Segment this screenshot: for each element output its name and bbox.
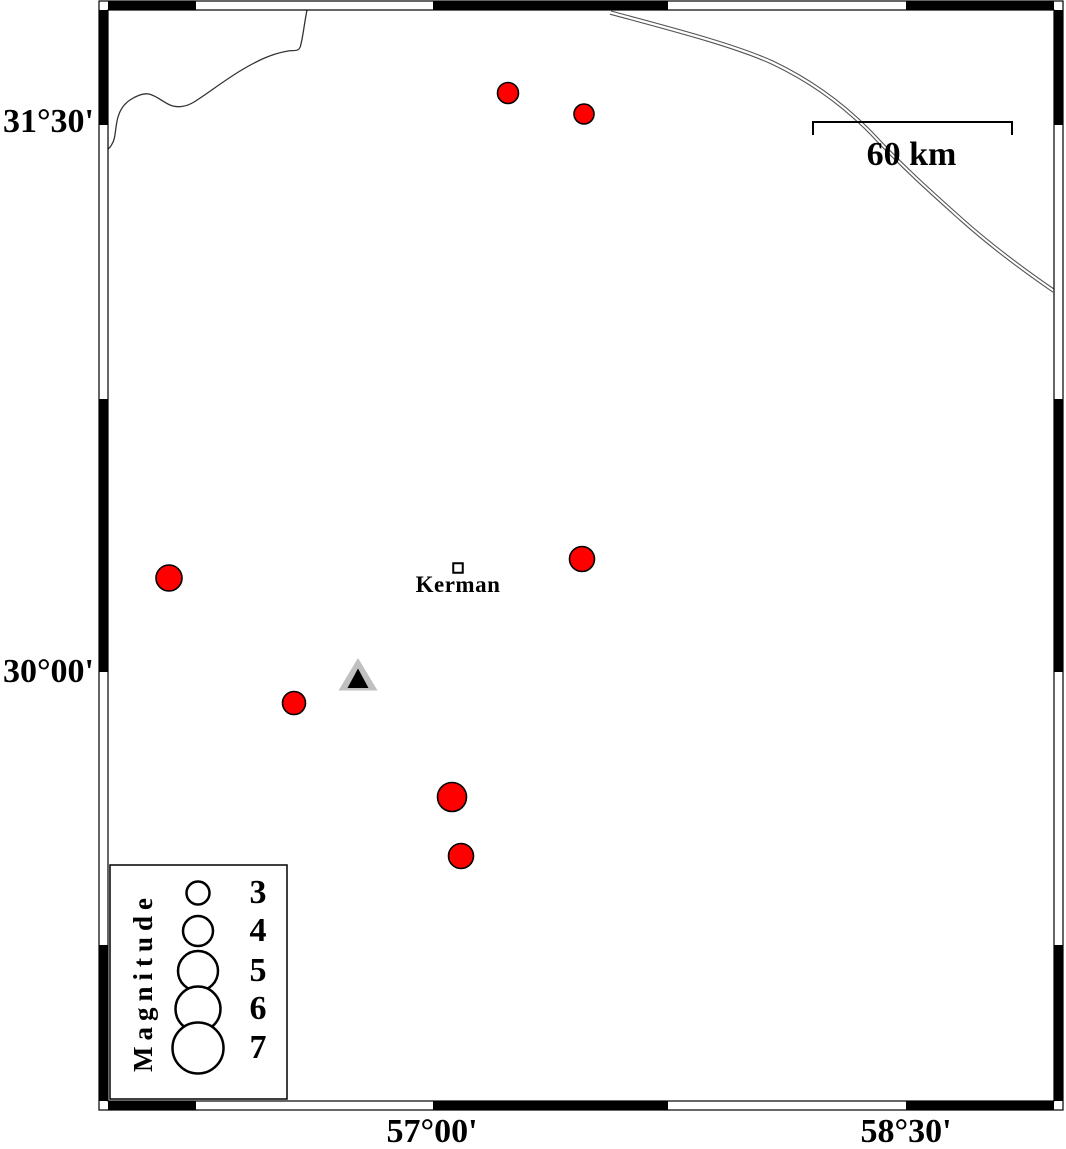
scale-bar-label: 60 km: [802, 137, 1022, 173]
legend-magnitude-circle: [187, 882, 210, 905]
frame-tick-segment: [1054, 399, 1063, 672]
lat-axis-label: 31°30': [0, 104, 94, 140]
legend-magnitude-value: 3: [228, 875, 288, 911]
frame-tick-segment: [433, 1, 668, 10]
epicenter-marker: [449, 844, 474, 869]
river-line: [108, 10, 307, 149]
frame-tick-segment: [1054, 945, 1063, 1101]
legend-magnitude-value: 5: [228, 953, 288, 989]
frame-tick-segment: [906, 1, 1054, 10]
lon-axis-label: 57°00': [322, 1114, 542, 1149]
legend-magnitude-circle: [178, 951, 218, 991]
frame-tick-segment: [108, 1, 196, 10]
legend-magnitude-circle: [183, 916, 213, 946]
legend-magnitude-value: 7: [228, 1030, 288, 1066]
legend-magnitude-value: 6: [228, 991, 288, 1027]
epicenter-marker: [438, 783, 467, 812]
lon-axis-label: 58°30': [796, 1114, 1016, 1149]
epicenter-marker: [283, 692, 306, 715]
legend-magnitude-circle: [173, 1023, 224, 1074]
lat-axis-label: 30°00': [0, 654, 94, 690]
frame-tick-segment: [108, 1101, 196, 1110]
frame-tick-segment: [433, 1101, 668, 1110]
scale-bar: [813, 122, 1012, 135]
epicenter-marker: [498, 83, 519, 104]
frame-tick-segment: [99, 399, 108, 672]
legend-magnitude-value: 4: [228, 913, 288, 949]
frame-tick-segment: [906, 1101, 1054, 1110]
epicenter-marker: [574, 104, 594, 124]
city-label-kerman: Kerman: [373, 572, 543, 598]
epicenter-marker: [570, 547, 595, 572]
frame-tick-segment: [1054, 10, 1063, 125]
seismicity-map: Kerman 60 km Magnitude 31°30'30°00'57°00…: [0, 0, 1066, 1149]
frame-tick-segment: [99, 10, 108, 125]
frame-tick-segment: [99, 945, 108, 1101]
legend-title-magnitude: Magnitude: [122, 872, 164, 1092]
epicenter-marker: [156, 565, 182, 591]
